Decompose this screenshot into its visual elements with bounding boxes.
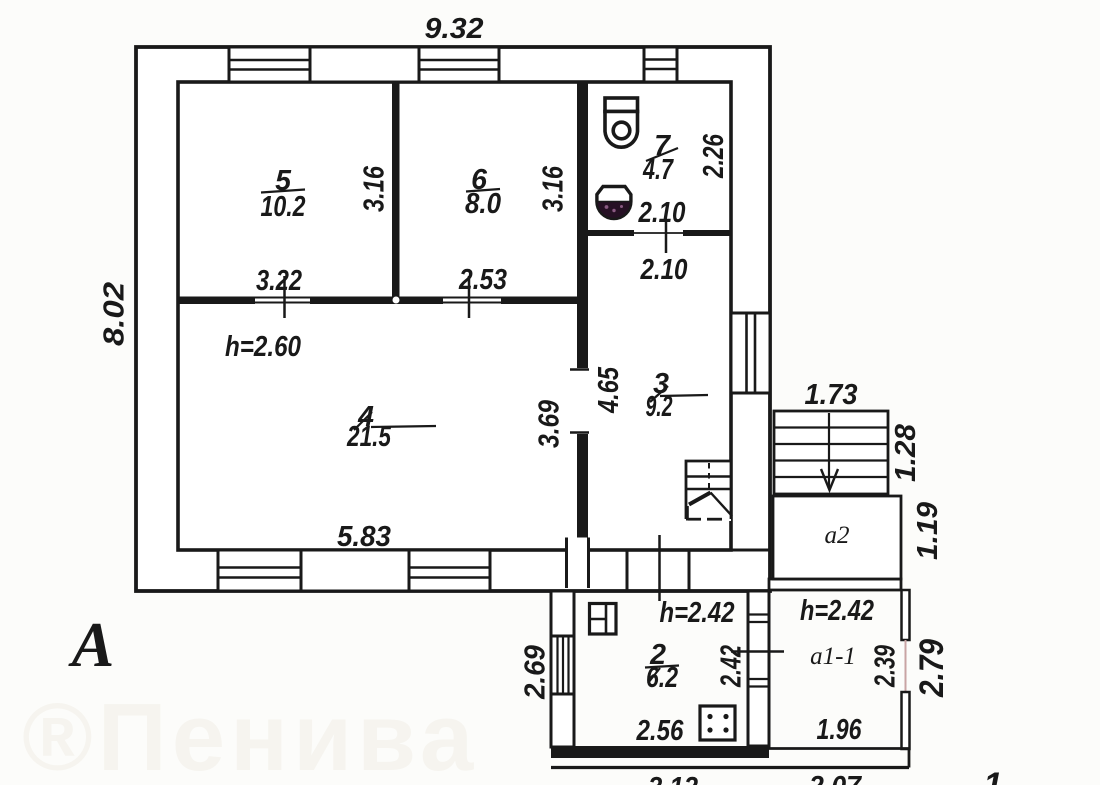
svg-text:2.53: 2.53 <box>458 264 507 296</box>
svg-text:2.56: 2.56 <box>636 715 684 747</box>
svg-text:3.69: 3.69 <box>534 400 566 448</box>
svg-text:1.96: 1.96 <box>817 714 862 746</box>
svg-text:a1-1: a1-1 <box>810 643 856 670</box>
svg-text:8.0: 8.0 <box>465 188 501 220</box>
svg-text:3.12: 3.12 <box>648 772 698 785</box>
svg-text:2.42: 2.42 <box>716 645 748 688</box>
svg-text:h=2.60: h=2.60 <box>225 331 301 363</box>
svg-text:1: 1 <box>984 766 1003 785</box>
svg-text:2.07: 2.07 <box>808 771 862 785</box>
svg-text:3.22: 3.22 <box>256 265 302 297</box>
svg-text:1.73: 1.73 <box>805 379 858 411</box>
svg-text:2.26: 2.26 <box>698 134 730 179</box>
svg-text:1.19: 1.19 <box>912 502 944 560</box>
svg-text:9.32: 9.32 <box>425 13 484 45</box>
svg-text:2.10: 2.10 <box>640 254 688 286</box>
svg-text:h=2.42: h=2.42 <box>800 595 874 627</box>
svg-text:A: A <box>68 609 115 680</box>
svg-text:2.39: 2.39 <box>870 645 902 688</box>
svg-text:6.2: 6.2 <box>646 662 678 694</box>
svg-text:®Пенива: ®Пенива <box>22 684 478 785</box>
svg-text:10.2: 10.2 <box>261 191 306 223</box>
svg-text:2.10: 2.10 <box>638 197 686 229</box>
svg-text:a2: a2 <box>825 522 850 549</box>
svg-text:3.16: 3.16 <box>359 166 391 212</box>
svg-text:2.69: 2.69 <box>520 645 552 700</box>
svg-text:1.28: 1.28 <box>890 424 922 482</box>
svg-text:21.5: 21.5 <box>346 421 392 453</box>
svg-text:8.02: 8.02 <box>99 282 131 346</box>
svg-text:3.16: 3.16 <box>538 166 570 212</box>
svg-text:5.83: 5.83 <box>337 521 391 553</box>
svg-text:h=2.42: h=2.42 <box>660 597 735 629</box>
svg-text:9.2: 9.2 <box>646 391 673 423</box>
svg-text:4.7: 4.7 <box>642 154 674 186</box>
svg-text:4.65: 4.65 <box>593 366 625 414</box>
svg-text:2.79: 2.79 <box>913 639 951 698</box>
